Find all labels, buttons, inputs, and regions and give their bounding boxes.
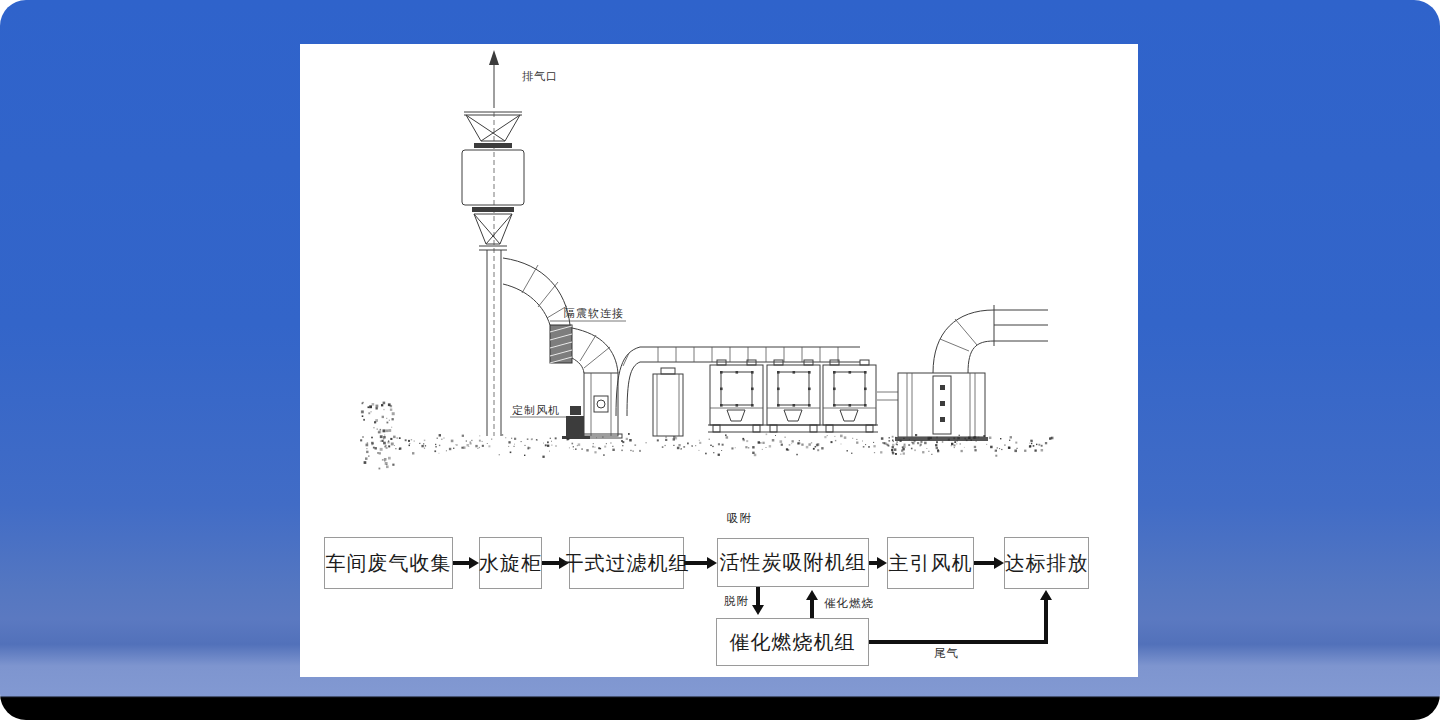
duct-bend-lower	[572, 328, 618, 373]
adsorption-annotation: 吸附	[727, 511, 752, 526]
flow-box-water-spray-cabinet: 水旋柜	[479, 537, 542, 589]
tail-gas-annotation: 尾气	[934, 646, 959, 661]
flow-box-dry-filter-unit: 干式过滤机组	[569, 537, 684, 589]
flow-box-main-induced-draft-fan: 主引风机	[887, 537, 974, 589]
duct-bend-upper	[503, 258, 570, 325]
flow-box-workshop-exhaust-collection: 车间废气收集	[324, 537, 453, 589]
outlet-unit	[877, 373, 988, 441]
fan	[562, 373, 622, 439]
diagram-panel: 排气口	[300, 44, 1138, 677]
ground-texture	[360, 402, 1053, 470]
slide-card: 排气口	[0, 0, 1440, 720]
adsorption-boxes	[710, 360, 876, 432]
inlet-elbow	[616, 347, 640, 416]
catalytic-combustion-annotation: 催化燃烧	[824, 596, 874, 611]
desorption-annotation: 脱附	[724, 594, 749, 609]
flow-box-compliant-discharge: 达标排放	[1004, 537, 1089, 589]
outlet-elbow	[933, 305, 1048, 373]
flow-box-catalytic-combustion-unit: 催化燃烧机组	[716, 618, 869, 666]
flexible-joint-label: 隔震软连接	[564, 307, 624, 319]
exhaust-arrow	[489, 50, 499, 108]
flow-box-activated-carbon-adsorption-unit: 活性炭吸附机组	[717, 538, 869, 587]
tank	[653, 368, 683, 436]
chimney	[462, 112, 524, 436]
flexible-joint	[550, 325, 572, 363]
custom-fan-label: 定制风机	[512, 404, 560, 416]
exhaust-outlet-label: 排气口	[522, 70, 558, 82]
tail-gas-line	[869, 600, 1046, 642]
